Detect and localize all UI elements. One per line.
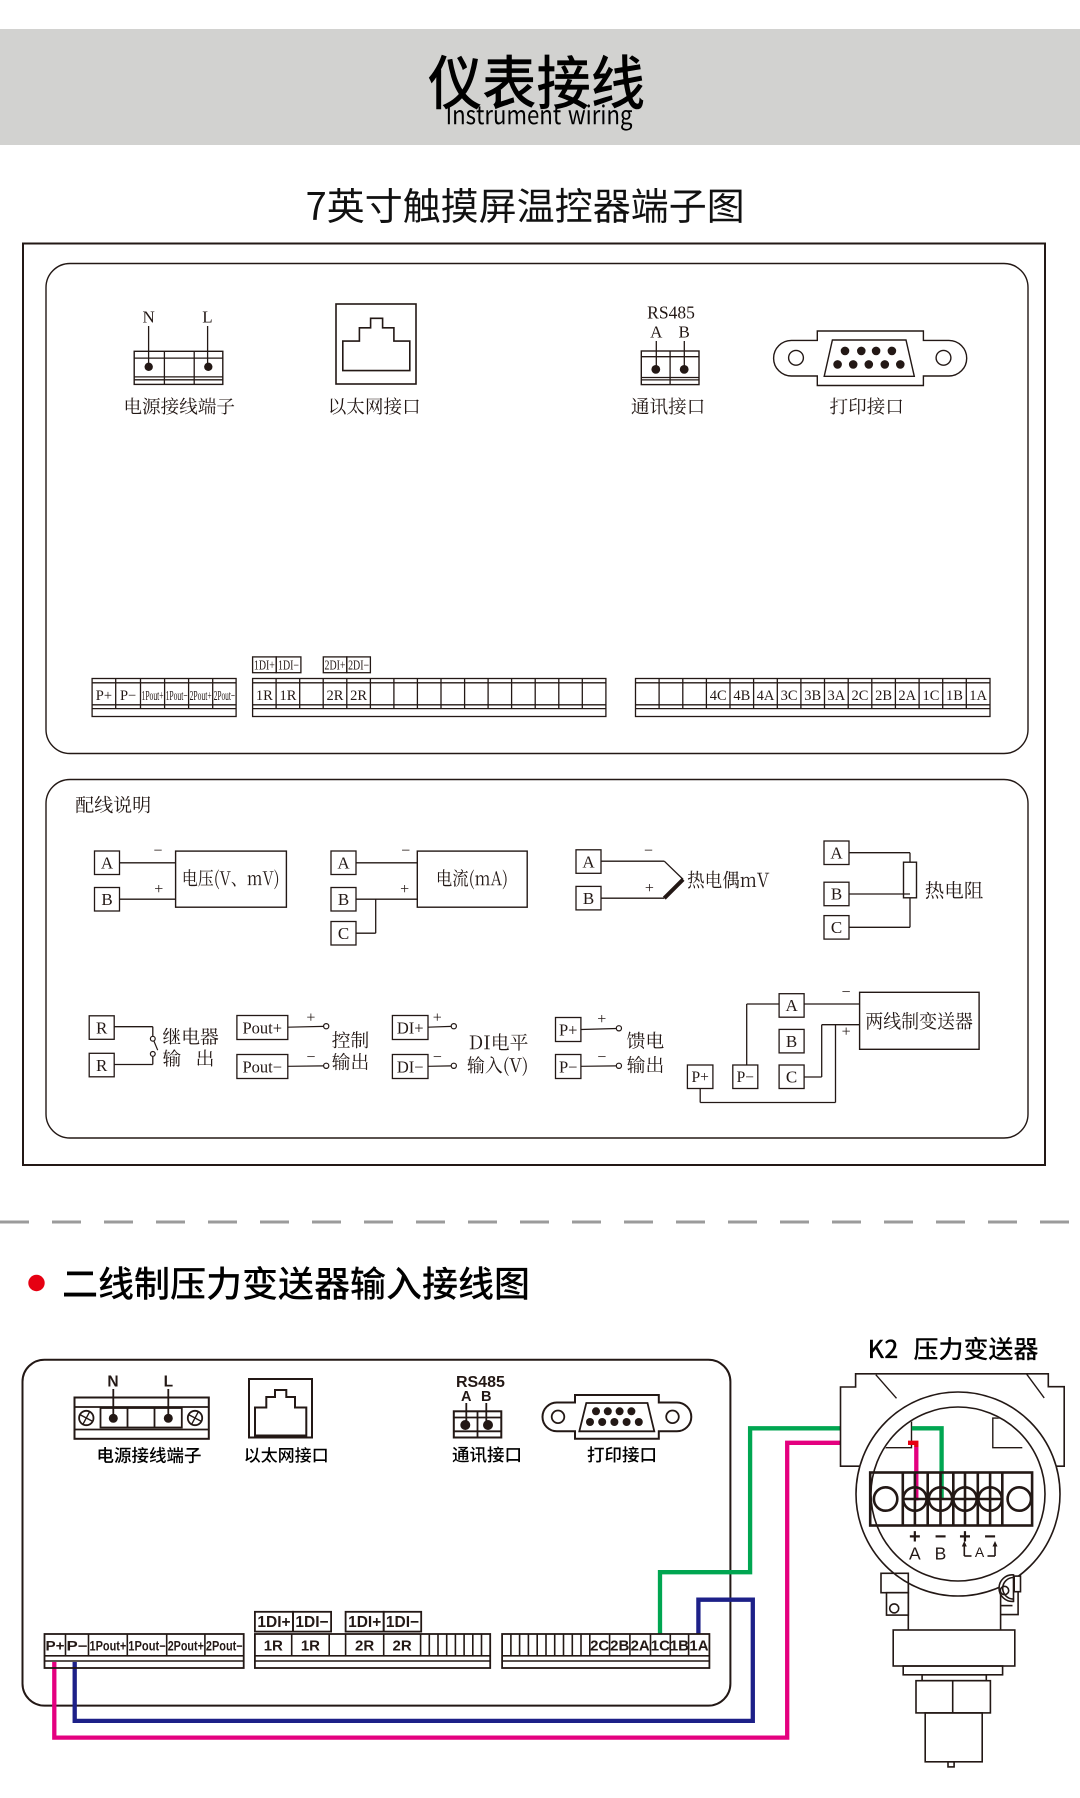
svg-text:+: + — [154, 881, 163, 898]
svg-text:2Pout−: 2Pout− — [206, 1639, 243, 1654]
svg-text:1DI−: 1DI− — [278, 658, 299, 673]
svg-text:C: C — [338, 924, 349, 943]
svg-text:4C: 4C — [710, 688, 727, 704]
svg-text:1A: 1A — [969, 688, 987, 704]
svg-text:2R: 2R — [355, 1638, 374, 1655]
svg-text:1B: 1B — [946, 688, 963, 704]
svg-text:2R: 2R — [327, 688, 344, 704]
svg-text:P−: P− — [737, 1069, 754, 1086]
svg-text:−: − — [841, 984, 850, 1001]
svg-text:L: L — [202, 308, 212, 327]
svg-text:P−: P− — [67, 1639, 88, 1654]
svg-text:B: B — [935, 1544, 947, 1564]
svg-text:2C: 2C — [590, 1638, 609, 1655]
svg-text:−: − — [401, 842, 410, 859]
svg-text:A: A — [830, 844, 843, 863]
svg-text:1DI+: 1DI+ — [348, 1614, 381, 1631]
svg-text:B: B — [583, 889, 594, 908]
svg-text:N: N — [107, 1374, 118, 1391]
svg-text:1C: 1C — [922, 688, 939, 704]
svg-text:2A: 2A — [898, 688, 916, 704]
svg-text:2R: 2R — [350, 688, 367, 704]
svg-text:2B: 2B — [875, 688, 892, 704]
svg-text:B: B — [786, 1032, 797, 1051]
svg-text:DI+: DI+ — [397, 1019, 424, 1038]
svg-text:1R: 1R — [279, 688, 296, 704]
svg-text:1B: 1B — [670, 1638, 689, 1655]
svg-text:2Pout−: 2Pout− — [214, 688, 235, 703]
svg-text:P+: P+ — [96, 688, 112, 704]
svg-text:P+: P+ — [691, 1069, 708, 1086]
svg-text:P−: P− — [120, 688, 136, 704]
svg-text:R: R — [96, 1018, 108, 1037]
svg-text:−: − — [153, 842, 162, 859]
svg-text:2DI+: 2DI+ — [325, 658, 346, 673]
svg-text:A: A — [975, 1544, 985, 1560]
svg-text:−: − — [306, 1049, 315, 1066]
svg-text:+: + — [842, 1024, 851, 1041]
svg-text:B: B — [481, 1389, 491, 1405]
svg-text:B: B — [338, 890, 349, 909]
svg-text:1DI+: 1DI+ — [257, 1614, 290, 1631]
svg-text:−: − — [597, 1049, 606, 1066]
svg-text:2B: 2B — [610, 1638, 629, 1655]
svg-text:A: A — [461, 1389, 472, 1405]
svg-text:2Pout+: 2Pout+ — [168, 1639, 204, 1654]
svg-text:A: A — [909, 1544, 921, 1564]
svg-text:−: − — [433, 1049, 442, 1066]
svg-text:Pout−: Pout− — [243, 1058, 283, 1077]
svg-text:B: B — [831, 885, 842, 904]
svg-text:3A: 3A — [827, 688, 845, 704]
svg-text:1DI−: 1DI− — [295, 1614, 328, 1631]
svg-text:1DI+: 1DI+ — [254, 658, 275, 673]
svg-text:P−: P− — [559, 1058, 577, 1077]
svg-text:2DI−: 2DI− — [348, 658, 369, 673]
svg-text:1Pout+: 1Pout+ — [142, 688, 164, 703]
svg-text:1R: 1R — [264, 1638, 283, 1655]
svg-text:C: C — [831, 918, 842, 937]
svg-text:C: C — [786, 1068, 797, 1087]
svg-text:P+: P+ — [559, 1021, 577, 1040]
svg-text:+: + — [306, 1010, 315, 1027]
svg-text:DI−: DI− — [397, 1058, 424, 1077]
svg-text:R: R — [96, 1056, 108, 1075]
svg-text:1R: 1R — [301, 1638, 320, 1655]
svg-text:1Pout+: 1Pout+ — [90, 1639, 127, 1654]
svg-text:+: + — [645, 880, 654, 897]
svg-text:4A: 4A — [757, 688, 775, 704]
svg-text:1Pout−: 1Pout− — [128, 1639, 165, 1654]
svg-text:RS485: RS485 — [647, 303, 695, 323]
svg-text:1C: 1C — [651, 1638, 670, 1655]
svg-text:3B: 3B — [804, 688, 821, 704]
svg-text:P+: P+ — [46, 1639, 65, 1654]
svg-text:1R: 1R — [256, 688, 273, 704]
svg-text:A: A — [785, 996, 798, 1015]
svg-text:A: A — [101, 854, 114, 873]
svg-text:L: L — [164, 1374, 173, 1391]
svg-text:A: A — [582, 852, 595, 871]
svg-text:B: B — [101, 890, 112, 909]
svg-text:3C: 3C — [781, 688, 798, 704]
svg-text:Pout+: Pout+ — [243, 1019, 283, 1038]
svg-text:A: A — [650, 323, 663, 342]
svg-text:+: + — [433, 1010, 442, 1027]
svg-text:+: + — [400, 881, 409, 898]
svg-text:2C: 2C — [852, 688, 869, 704]
svg-text:2R: 2R — [393, 1638, 412, 1655]
svg-text:+: + — [597, 1011, 606, 1028]
svg-text:1A: 1A — [689, 1638, 708, 1655]
svg-text:1Pout−: 1Pout− — [166, 688, 188, 703]
svg-text:1DI−: 1DI− — [386, 1614, 419, 1631]
svg-text:−: − — [644, 843, 653, 860]
svg-text:2A: 2A — [631, 1638, 650, 1655]
svg-text:A: A — [337, 854, 350, 873]
svg-text:2Pout+: 2Pout+ — [190, 688, 212, 703]
svg-text:4B: 4B — [733, 688, 750, 704]
svg-text:B: B — [679, 323, 690, 342]
svg-text:N: N — [142, 308, 154, 327]
